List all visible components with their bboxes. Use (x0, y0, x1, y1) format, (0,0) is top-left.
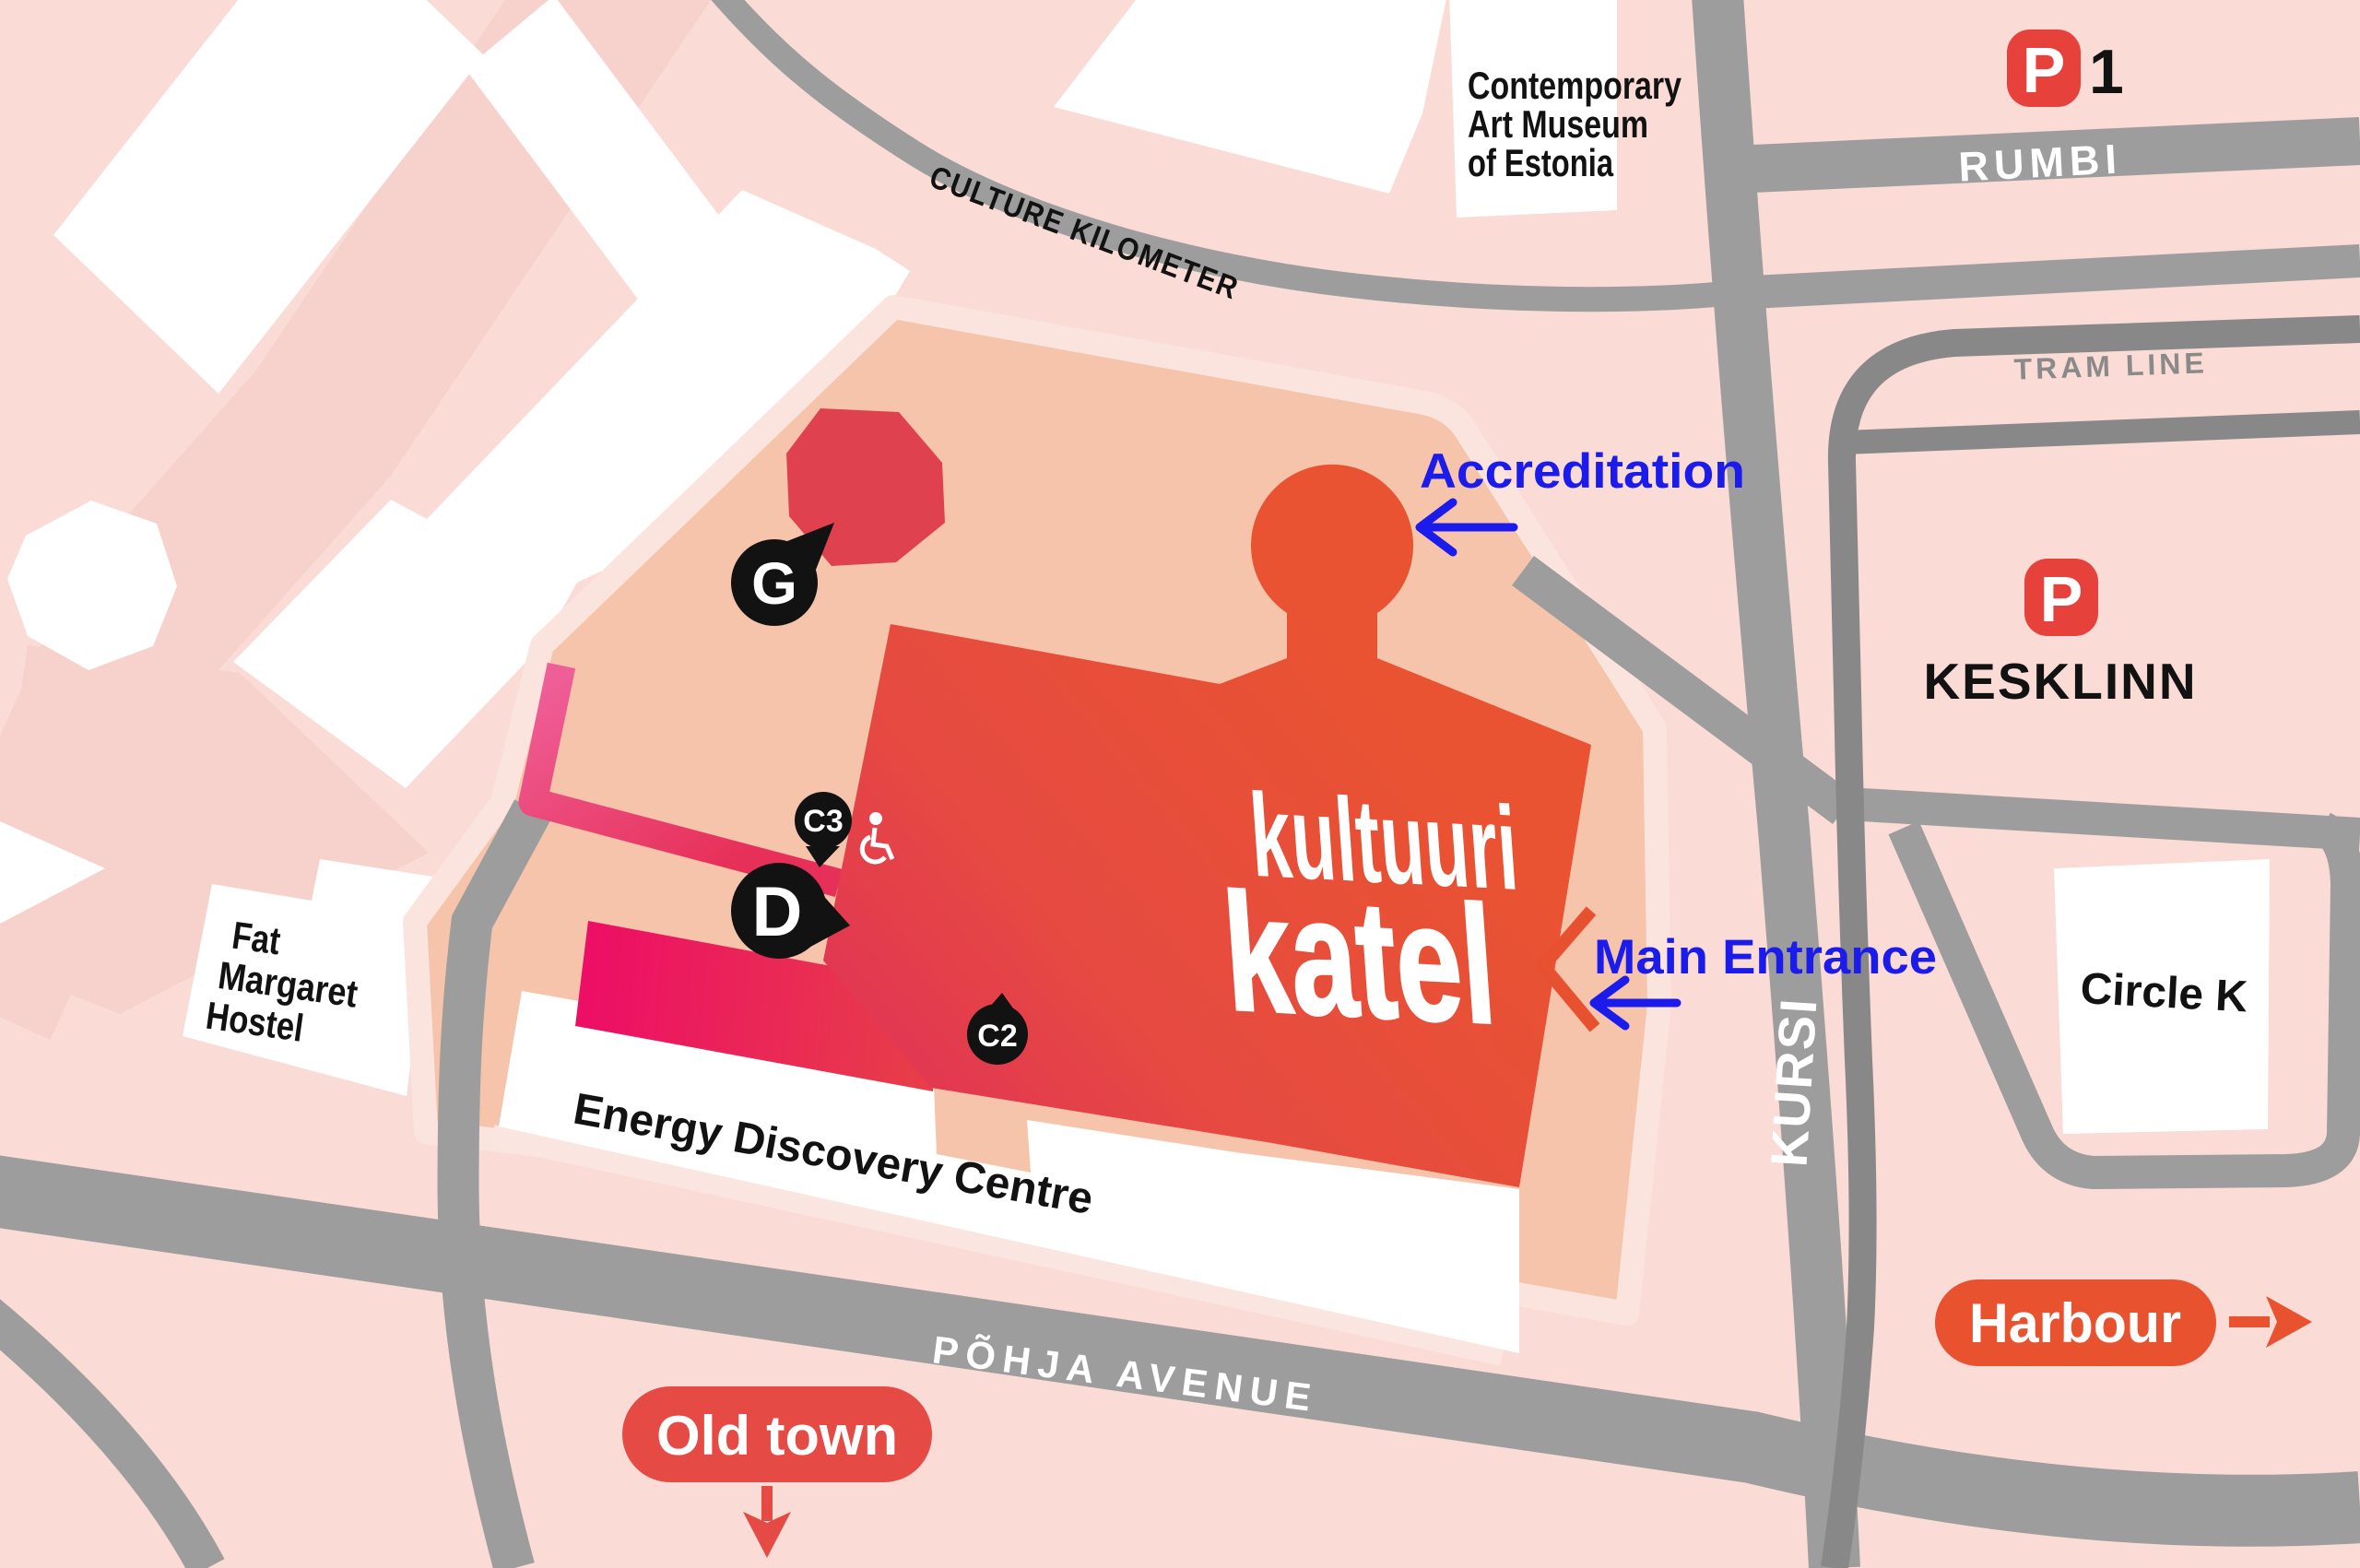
svg-text:C2: C2 (977, 1019, 1017, 1054)
svg-text:C3: C3 (803, 804, 843, 839)
svg-text:Circle K: Circle K (2079, 964, 2248, 1021)
svg-text:Main Entrance: Main Entrance (1594, 930, 1937, 984)
svg-text:RUMBI: RUMBI (1957, 135, 2123, 190)
svg-text:KURSI: KURSI (1759, 996, 1827, 1169)
svg-text:Accreditation: Accreditation (1420, 444, 1745, 499)
svg-text:of Estonia: of Estonia (1468, 141, 1613, 184)
svg-text:P: P (2023, 34, 2066, 106)
svg-text:Art Museum: Art Museum (1468, 102, 1648, 146)
svg-text:P: P (2040, 563, 2083, 635)
svg-text:Contemporary: Contemporary (1468, 64, 1682, 107)
svg-text:katel: katel (1218, 858, 1501, 1059)
svg-text:KESKLINN: KESKLINN (1923, 653, 2197, 710)
svg-text:Harbour: Harbour (1969, 1292, 2181, 1354)
svg-text:1: 1 (2089, 37, 2124, 107)
svg-text:TRAM LINE: TRAM LINE (2013, 346, 2208, 385)
svg-text:G: G (751, 550, 797, 617)
svg-text:D: D (752, 873, 803, 951)
svg-text:Old town: Old town (656, 1405, 898, 1467)
